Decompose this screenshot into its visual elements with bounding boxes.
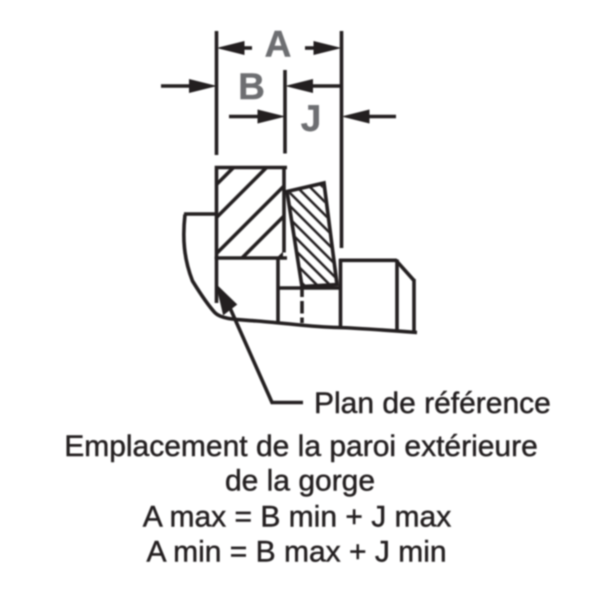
svg-text:Emplacement de la paroi extéri: Emplacement de la paroi extérieure [64, 430, 538, 463]
svg-text:A max = B min + J max: A max = B min + J max [143, 501, 451, 534]
svg-text:Plan de référence: Plan de référence [314, 387, 551, 420]
svg-text:A: A [265, 24, 292, 65]
svg-text:A min = B max + J min: A min = B max + J min [146, 535, 446, 568]
svg-text:B: B [238, 66, 265, 107]
svg-text:de la gorge: de la gorge [225, 465, 375, 498]
svg-text:J: J [301, 98, 322, 139]
